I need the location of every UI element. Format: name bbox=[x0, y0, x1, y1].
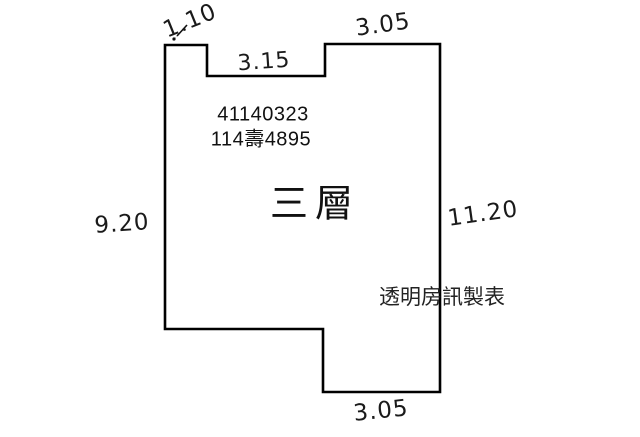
case-number-line2: 114壽4895 bbox=[211, 123, 311, 152]
dimension-inner-top: 3.15 bbox=[237, 48, 292, 77]
floor-plan-canvas: 1.10 3.05 3.15 9.20 11.20 3.05 41140323 … bbox=[0, 0, 640, 437]
dimension-left: 9.20 bbox=[94, 209, 151, 239]
producer-credit: 透明房訊製表 bbox=[379, 281, 505, 311]
floor-title: 三層 bbox=[270, 173, 360, 228]
